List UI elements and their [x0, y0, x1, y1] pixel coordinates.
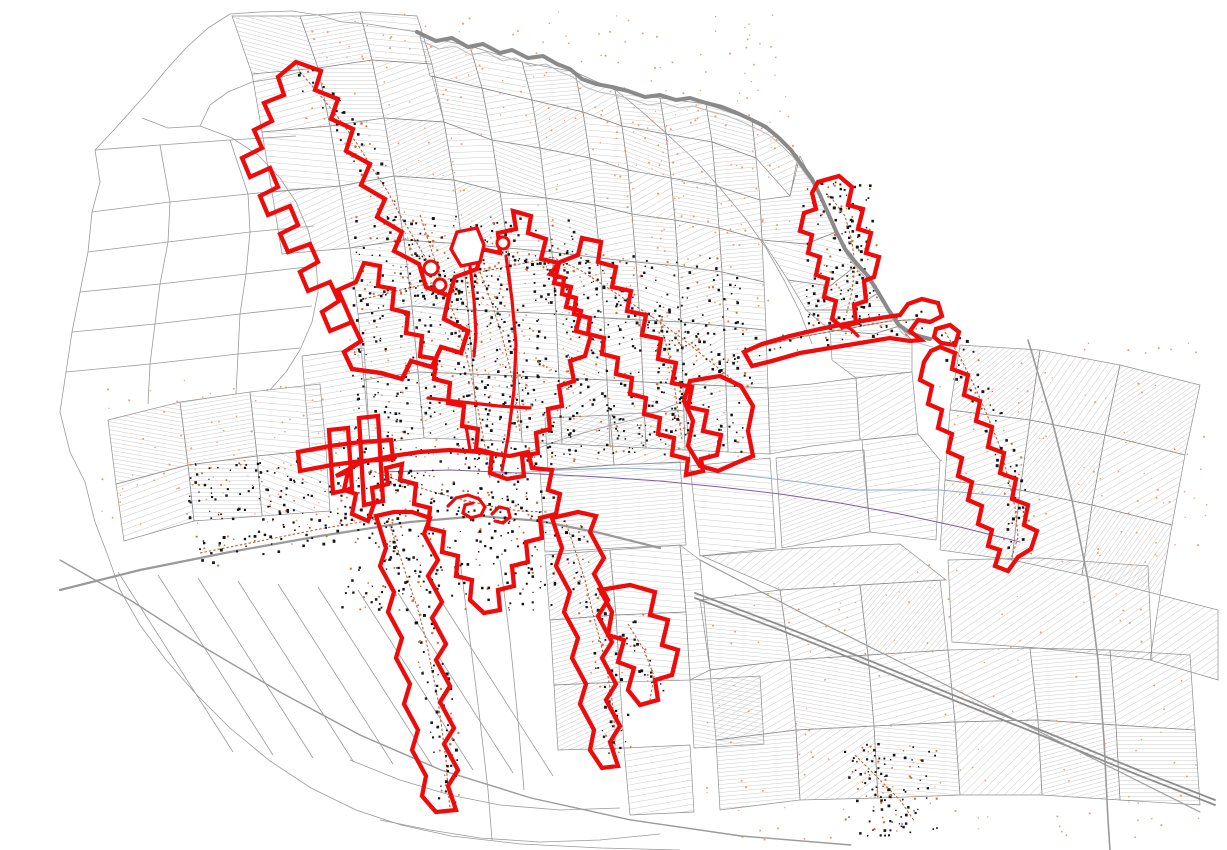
- field-dot: [706, 296, 707, 297]
- orchard-dot: [476, 369, 478, 371]
- building: [566, 407, 567, 408]
- building: [498, 370, 499, 371]
- orchard-dot: [415, 447, 417, 449]
- field-dot: [1125, 442, 1126, 443]
- orchard-dot: [619, 260, 621, 262]
- building: [932, 828, 934, 830]
- field-dot: [568, 312, 570, 314]
- orchard-dot: [614, 377, 616, 379]
- building: [1012, 523, 1013, 524]
- building: [262, 518, 265, 521]
- orchard-dot: [857, 270, 859, 272]
- building: [430, 324, 433, 327]
- building: [554, 314, 555, 315]
- building: [505, 472, 508, 475]
- building: [981, 408, 982, 409]
- field-dot: [544, 74, 546, 76]
- building: [399, 413, 401, 415]
- field-dot: [525, 314, 527, 316]
- building: [384, 523, 386, 525]
- building: [396, 517, 399, 520]
- building: [235, 464, 237, 466]
- building: [474, 458, 476, 460]
- field-outline: [198, 578, 313, 758]
- building: [634, 639, 636, 641]
- field-dot: [796, 164, 798, 166]
- building: [402, 593, 403, 594]
- field-dot: [748, 114, 750, 116]
- field-dot: [353, 520, 355, 522]
- building: [588, 272, 590, 274]
- parcel-block: [624, 745, 694, 815]
- building: [358, 349, 360, 351]
- orchard-dot: [857, 788, 859, 790]
- orchard-dot: [424, 233, 426, 235]
- orchard-dot: [409, 247, 412, 250]
- field-dot: [357, 355, 359, 357]
- field-dot: [788, 621, 790, 623]
- building: [455, 216, 457, 218]
- field-dot: [1206, 504, 1208, 506]
- building: [550, 563, 552, 565]
- field-dot: [662, 174, 664, 176]
- orchard-dot: [829, 271, 831, 273]
- field-dot: [481, 333, 483, 335]
- field-dot: [634, 406, 636, 408]
- orchard-dot: [666, 312, 668, 314]
- orchard-dot: [594, 661, 596, 663]
- building: [578, 262, 581, 265]
- field-dot: [471, 393, 473, 395]
- building: [572, 415, 574, 417]
- building: [487, 384, 489, 386]
- field-dot: [741, 224, 742, 225]
- building: [438, 797, 440, 799]
- building: [806, 289, 808, 291]
- orchard-dot: [477, 374, 479, 376]
- building: [460, 565, 462, 567]
- building: [516, 489, 518, 491]
- field-dot: [1129, 622, 1131, 624]
- field-dot: [594, 106, 596, 108]
- building: [513, 484, 515, 486]
- building: [573, 562, 575, 564]
- building: [516, 399, 518, 401]
- parcel-block: [768, 378, 860, 454]
- building: [507, 253, 510, 256]
- field-dot: [400, 347, 402, 349]
- field-dot: [723, 368, 725, 370]
- building: [868, 197, 870, 199]
- building: [311, 537, 313, 539]
- orchard-dot: [675, 333, 677, 335]
- field-dot: [364, 338, 365, 339]
- field-dot: [808, 730, 810, 732]
- field-outline: [72, 306, 312, 332]
- orchard-dot: [607, 283, 609, 285]
- orchard-dot: [615, 312, 617, 314]
- field-dot: [909, 745, 911, 747]
- field-dot: [582, 111, 584, 113]
- field-dot: [1041, 401, 1043, 403]
- orchard-dot: [419, 640, 422, 643]
- building: [474, 280, 477, 283]
- orchard-dot: [417, 581, 419, 583]
- orchard-dot: [422, 671, 423, 672]
- building: [497, 481, 499, 483]
- building: [438, 273, 440, 275]
- field-dot: [735, 594, 736, 595]
- field-dot: [778, 166, 780, 168]
- building: [800, 336, 802, 338]
- building: [454, 332, 456, 334]
- building: [826, 194, 828, 196]
- building: [888, 834, 890, 836]
- building: [387, 383, 389, 385]
- building: [336, 530, 339, 533]
- building: [476, 539, 478, 541]
- cadastral-map-canvas: [0, 0, 1227, 850]
- field-dot: [647, 127, 649, 129]
- building: [687, 287, 689, 289]
- building: [487, 413, 489, 415]
- building: [378, 608, 381, 611]
- field-dot: [1019, 640, 1021, 642]
- building: [423, 651, 425, 653]
- field-dot: [707, 722, 709, 724]
- field-dot: [278, 493, 280, 495]
- field-dot: [306, 481, 307, 482]
- field-dot: [1174, 762, 1176, 764]
- orchard-dot: [439, 413, 441, 415]
- building: [375, 542, 377, 544]
- building: [628, 451, 630, 453]
- building: [681, 305, 683, 307]
- building: [594, 652, 597, 655]
- orchard-dot: [1003, 538, 1005, 540]
- field-dot: [481, 134, 482, 135]
- field-dot: [775, 228, 777, 230]
- field-dot: [1170, 349, 1172, 351]
- building: [675, 430, 677, 432]
- building: [615, 297, 617, 299]
- orchard-dot: [369, 237, 371, 239]
- building: [903, 789, 905, 791]
- field-dot: [365, 329, 367, 331]
- building: [359, 170, 362, 173]
- field-dot: [744, 73, 746, 75]
- orchard-dot: [487, 492, 489, 494]
- building: [744, 375, 746, 377]
- building: [457, 309, 458, 310]
- building: [544, 285, 546, 287]
- building: [1020, 479, 1023, 482]
- building: [566, 355, 568, 357]
- field-dot: [965, 473, 967, 475]
- building: [211, 493, 212, 494]
- building: [487, 419, 489, 421]
- building: [598, 372, 599, 373]
- orchard-dot: [534, 456, 536, 458]
- field-dot: [107, 388, 109, 390]
- building: [489, 402, 491, 404]
- building: [610, 408, 612, 410]
- orchard-dot: [443, 528, 445, 530]
- building: [438, 585, 440, 587]
- field-dot: [668, 445, 669, 446]
- building: [445, 755, 447, 757]
- building: [599, 430, 600, 431]
- building: [802, 205, 804, 207]
- field-dot: [707, 220, 709, 222]
- building: [357, 458, 359, 460]
- building: [904, 757, 907, 760]
- building: [820, 215, 822, 217]
- building: [353, 304, 356, 307]
- building: [286, 487, 288, 489]
- field-dot: [386, 66, 388, 68]
- field-dot: [558, 11, 559, 12]
- building: [412, 357, 414, 359]
- building: [426, 589, 428, 591]
- building: [566, 271, 569, 274]
- building: [380, 338, 381, 339]
- orchard-dot: [511, 331, 513, 333]
- building: [408, 472, 410, 474]
- field-dot: [984, 662, 985, 663]
- orchard-dot: [445, 332, 446, 333]
- field-dot: [978, 828, 979, 829]
- field-dot: [1137, 802, 1139, 804]
- building: [351, 118, 354, 121]
- field-dot: [959, 769, 960, 770]
- building: [481, 587, 484, 590]
- field-dot: [452, 190, 454, 192]
- building: [411, 239, 413, 241]
- building: [506, 582, 509, 585]
- building: [418, 575, 420, 577]
- orchard-dot: [553, 572, 555, 574]
- building: [411, 596, 412, 597]
- building: [358, 408, 360, 410]
- building: [280, 490, 282, 492]
- field-dot: [700, 90, 701, 91]
- building: [477, 459, 479, 461]
- field-dot: [255, 400, 257, 402]
- building: [866, 199, 868, 201]
- orchard-dot: [413, 599, 415, 601]
- field-dot: [213, 477, 214, 478]
- field-dot: [1160, 732, 1161, 733]
- field-dot: [296, 520, 298, 522]
- building: [492, 496, 495, 499]
- building: [643, 445, 645, 447]
- field-dot: [719, 705, 720, 706]
- orchard-dot: [588, 561, 590, 563]
- building: [583, 285, 584, 286]
- building: [966, 340, 969, 343]
- building: [818, 322, 820, 324]
- building: [878, 314, 880, 316]
- building: [411, 475, 412, 476]
- orchard-dot: [514, 263, 516, 265]
- building: [432, 470, 434, 472]
- orchard-dot: [542, 365, 544, 367]
- building: [550, 301, 553, 304]
- field-dot: [1180, 795, 1182, 797]
- field-dot: [618, 97, 619, 98]
- building: [322, 543, 325, 546]
- building: [863, 306, 866, 309]
- field-dot: [163, 411, 165, 413]
- orchard-dot: [827, 186, 829, 188]
- field-dot: [216, 442, 218, 444]
- building: [467, 491, 468, 492]
- field-dot: [1141, 641, 1143, 643]
- field-dot: [957, 415, 959, 417]
- building: [554, 393, 556, 395]
- building: [632, 255, 635, 258]
- building: [547, 269, 549, 271]
- building: [431, 294, 433, 296]
- building: [719, 361, 721, 363]
- field-dot: [758, 305, 760, 307]
- building: [535, 462, 538, 465]
- building: [425, 697, 427, 699]
- orchard-dot: [478, 468, 479, 469]
- building: [436, 726, 439, 729]
- building: [447, 258, 448, 259]
- field-dot: [1198, 818, 1200, 820]
- field-dot: [715, 16, 716, 17]
- building: [1008, 523, 1010, 525]
- building: [832, 271, 835, 274]
- field-dot: [690, 219, 691, 220]
- building: [433, 304, 435, 306]
- field-dot: [1018, 411, 1020, 413]
- field-dot: [192, 484, 194, 486]
- field-dot: [1040, 631, 1042, 633]
- building: [244, 467, 246, 469]
- building: [267, 470, 269, 472]
- building: [654, 310, 656, 312]
- field-dot: [737, 455, 739, 457]
- building: [439, 736, 441, 738]
- building: [544, 412, 546, 414]
- orchard-dot: [508, 349, 510, 351]
- building: [470, 342, 472, 344]
- building: [664, 454, 666, 456]
- building: [602, 730, 603, 731]
- field-dot: [481, 68, 483, 70]
- orchard-dot: [589, 275, 591, 277]
- field-dot: [798, 608, 800, 610]
- orchard-dot: [370, 377, 371, 378]
- orchard-dot: [826, 248, 828, 250]
- building: [219, 542, 221, 544]
- parcel-block: [1110, 650, 1195, 730]
- building: [510, 351, 513, 354]
- field-dot: [517, 30, 519, 32]
- building: [374, 523, 376, 525]
- building: [497, 278, 499, 280]
- building: [808, 316, 810, 318]
- orchard-dot: [291, 543, 293, 545]
- building: [867, 835, 868, 836]
- field-dot: [552, 219, 554, 221]
- building: [619, 328, 622, 331]
- building: [871, 220, 874, 223]
- building: [283, 526, 285, 528]
- field-dot: [1122, 609, 1124, 611]
- building: [406, 557, 408, 559]
- building: [374, 394, 376, 396]
- field-dot: [538, 240, 540, 242]
- building: [661, 391, 663, 393]
- field-dot: [726, 232, 728, 234]
- field-dot: [468, 292, 470, 294]
- field-dot: [468, 214, 469, 215]
- building: [503, 438, 505, 440]
- field-dot: [674, 396, 676, 398]
- building: [270, 501, 272, 503]
- building: [612, 452, 614, 454]
- orchard-dot: [517, 252, 519, 254]
- building: [374, 225, 376, 227]
- building: [674, 407, 676, 409]
- orchard-dot: [522, 403, 524, 405]
- building: [283, 504, 286, 507]
- building: [663, 392, 665, 394]
- building: [632, 297, 634, 299]
- field-dot: [733, 685, 734, 686]
- building: [874, 755, 876, 757]
- field-dot: [451, 137, 453, 139]
- building: [1018, 507, 1021, 510]
- field-dot: [283, 462, 285, 464]
- building: [509, 396, 511, 398]
- orchard-dot: [597, 597, 600, 600]
- orchard-dot: [454, 286, 456, 288]
- building: [366, 303, 369, 306]
- field-dot: [447, 99, 449, 101]
- building: [454, 540, 456, 542]
- building: [434, 386, 436, 388]
- field-dot: [210, 393, 211, 394]
- building: [385, 348, 387, 350]
- field-dot: [764, 839, 766, 841]
- building: [451, 595, 453, 597]
- building: [668, 348, 670, 350]
- orchard-dot: [400, 526, 402, 528]
- building: [410, 223, 413, 226]
- parcel-block: [180, 392, 257, 465]
- orchard-dot: [354, 351, 356, 353]
- building: [211, 496, 213, 498]
- building: [421, 406, 422, 407]
- building: [484, 394, 486, 396]
- field-outline: [158, 575, 273, 755]
- field-dot: [1043, 438, 1045, 440]
- building: [538, 319, 539, 320]
- building: [434, 225, 436, 227]
- orchard-dot: [467, 421, 469, 423]
- building: [462, 516, 464, 518]
- building: [554, 288, 556, 290]
- building: [504, 233, 507, 236]
- built-area-divider-line: [492, 507, 510, 523]
- building: [847, 226, 849, 228]
